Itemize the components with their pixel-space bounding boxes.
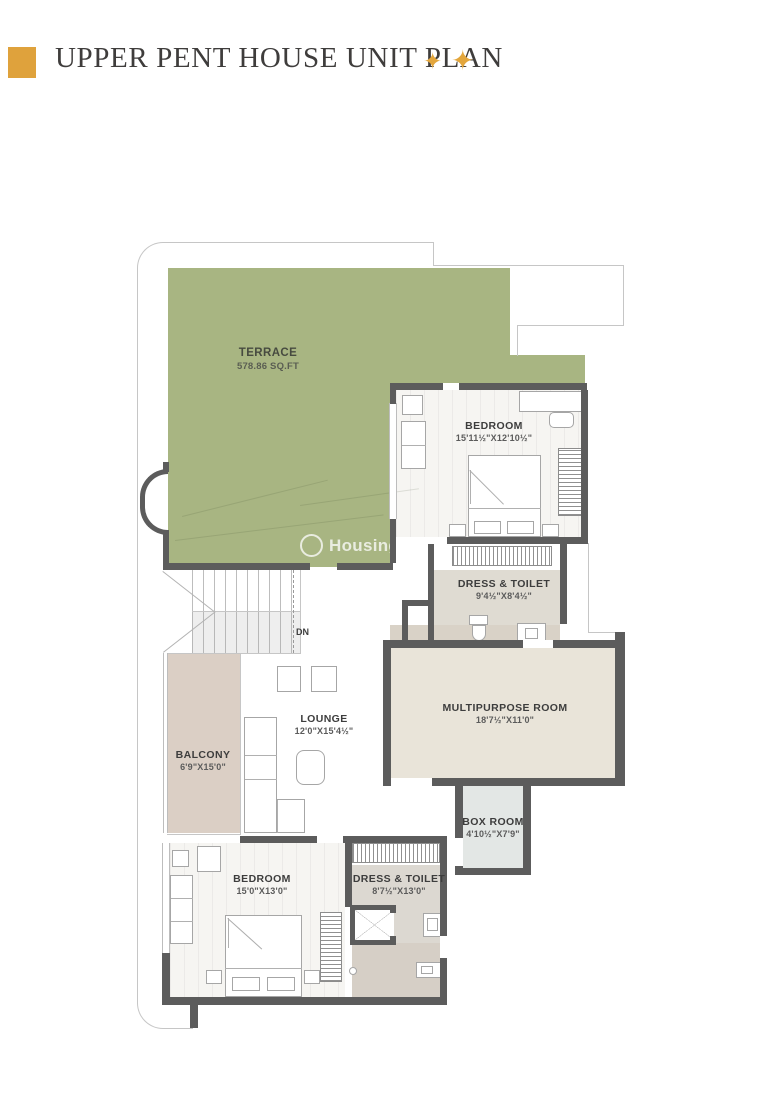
sparkle-star-icon: ✦: [451, 47, 474, 75]
toilet-symbol: [421, 966, 433, 974]
curved-wall: [140, 469, 168, 535]
wardrobe-symbol: [452, 546, 552, 566]
wall-segment: [390, 383, 587, 390]
terrace-area: [168, 268, 510, 355]
wall-segment: [163, 563, 310, 570]
wall-segment: [337, 563, 393, 570]
nightstand-symbol: [542, 524, 559, 537]
wall-segment: [390, 936, 396, 945]
boundary-line: [137, 268, 138, 1004]
nightstand-symbol: [449, 524, 466, 537]
boundary-line: [137, 242, 166, 270]
door-opening: [440, 936, 447, 958]
dress-toilet-bottom-label: DRESS & TOILET 8'7½"X13'0": [353, 873, 445, 897]
blanket-line: [225, 968, 302, 969]
door-opening: [443, 383, 459, 390]
wall-segment: [523, 786, 531, 875]
chair-symbol: [549, 412, 574, 428]
boundary-line: [164, 242, 434, 243]
wall-segment: [560, 544, 567, 624]
pillow-symbol: [474, 521, 501, 534]
pillow-symbol: [267, 977, 295, 991]
blanket-line: [468, 508, 541, 509]
sofa-cushion-line: [171, 898, 193, 899]
watermark-text: Housing: [329, 536, 399, 556]
side-table-symbol: [197, 846, 221, 872]
wall-segment: [428, 544, 434, 640]
wall-segment: [432, 778, 625, 786]
wall-segment: [240, 836, 317, 843]
boundary-line: [623, 265, 624, 326]
sofa-cushion-line: [245, 779, 277, 780]
wardrobe-symbol: [352, 843, 440, 863]
balcony-label: BALCONY 6'9"X15'0": [176, 749, 231, 773]
lounge-label: LOUNGE 12'0"X15'4½": [295, 713, 354, 737]
boundary-line: [517, 326, 518, 356]
wall-segment: [455, 868, 531, 875]
wall-segment: [390, 390, 396, 404]
box-room-label: BOX ROOM 4'10½"X7'9": [462, 816, 524, 840]
blanket-fold-line: [470, 470, 471, 504]
boundary-line: [517, 325, 624, 326]
stairs-down-label: DN: [296, 627, 309, 637]
nightstand-symbol: [206, 970, 222, 984]
terrace-area: [168, 355, 585, 383]
bedroom-top-label: BEDROOM 15'11½"X12'10½": [456, 420, 532, 444]
boundary-line: [300, 570, 301, 653]
wall-segment: [581, 390, 588, 537]
toilet-bowl-symbol: [472, 625, 486, 641]
window-band: [389, 403, 397, 519]
wall-segment: [447, 537, 588, 544]
boundary-line: [433, 265, 624, 266]
pillow-symbol: [507, 521, 534, 534]
sofa-symbol: [170, 875, 193, 944]
armchair-symbol: [311, 666, 337, 692]
door-knob-symbol: [349, 967, 357, 975]
washbasin-symbol: [525, 628, 538, 639]
boundary-line: [167, 834, 241, 835]
sofa-symbol: [277, 799, 305, 833]
wall-segment: [440, 843, 447, 1005]
boundary-line: [588, 632, 616, 633]
wall-segment: [343, 836, 447, 843]
desk-symbol: [519, 391, 582, 412]
balcony-railing: [163, 653, 168, 833]
stairs-break-line: [293, 570, 294, 653]
watermark-logo-icon: [300, 534, 323, 557]
wall-segment: [390, 905, 396, 913]
blanket-fold-line: [228, 918, 229, 948]
sofa-symbol: [244, 717, 277, 833]
terrace-label: TERRACE 578.86 SQ.FT: [237, 347, 299, 373]
wall-segment: [162, 997, 447, 1005]
toilet-cistern-symbol: [469, 615, 488, 625]
dresser-symbol: [402, 395, 423, 415]
wall-segment: [390, 519, 396, 563]
armchair-symbol: [277, 666, 301, 692]
wall-segment: [190, 1005, 198, 1028]
bedroom-bottom-label: BEDROOM 15'0"X13'0": [233, 873, 291, 897]
wall-segment: [391, 640, 623, 648]
watermark: Housing: [300, 534, 399, 557]
nightstand-symbol: [304, 970, 320, 984]
sofa-cushion-line: [245, 755, 277, 756]
multipurpose-room-label: MULTIPURPOSE ROOM 18'7½"X11'0": [442, 702, 567, 726]
wall-segment: [345, 843, 352, 907]
side-table-symbol: [296, 750, 325, 785]
washbasin-symbol: [427, 918, 438, 931]
door-opening: [455, 838, 463, 866]
boundary-line: [137, 1002, 193, 1029]
sofa-cushion-line: [402, 445, 426, 446]
dress-toilet-top-label: DRESS & TOILET 9'4½"X8'4½": [458, 578, 550, 602]
wall-segment: [402, 606, 408, 642]
shower-symbol: [350, 905, 394, 945]
window-band: [162, 843, 170, 955]
balcony-floor: [167, 653, 240, 833]
boundary-line: [240, 653, 241, 834]
boundary-line: [163, 653, 301, 654]
wardrobe-symbol: [558, 448, 582, 516]
sofa-cushion-line: [171, 921, 193, 922]
wall-segment: [615, 632, 625, 786]
wardrobe-symbol: [320, 912, 342, 982]
pillow-symbol: [232, 977, 260, 991]
door-opening: [523, 640, 553, 648]
sparkle-star-icon: ✦: [423, 51, 442, 74]
boundary-line: [588, 543, 589, 633]
header-accent-square: [8, 47, 36, 78]
floor-plan-page: UPPER PENT HOUSE UNIT PLAN ✦ ✦ DN Housin…: [0, 0, 768, 1117]
wall-segment: [383, 640, 391, 786]
sofa-cushion-line: [277, 800, 278, 833]
stairs-divider: [192, 611, 300, 612]
boundary-line: [433, 242, 434, 266]
side-table-symbol: [172, 850, 189, 867]
